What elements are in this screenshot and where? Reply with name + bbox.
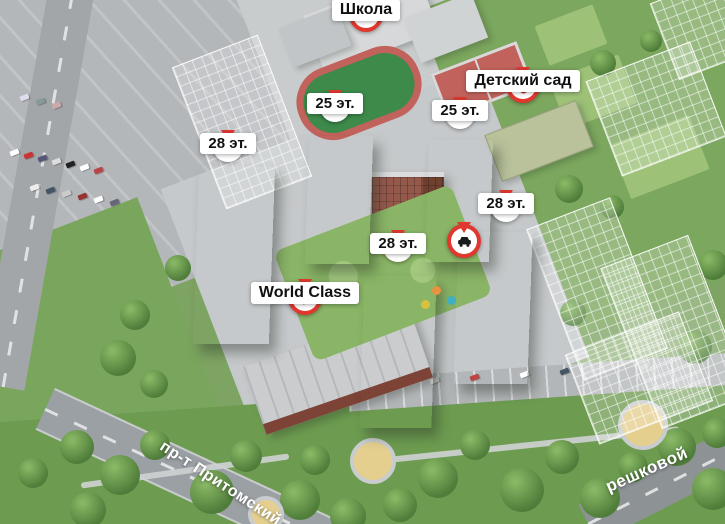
tree	[383, 488, 417, 522]
aerial-masterplan-scene: Школа к 2 25 эт. к 1 25 эт. Детский сад …	[0, 0, 725, 524]
tree	[60, 430, 94, 464]
tower-k5	[193, 166, 275, 344]
tree	[555, 175, 583, 203]
tree	[418, 458, 458, 498]
tree	[70, 492, 106, 524]
floors-label-k1: 25 эт.	[432, 100, 487, 121]
sand-circle-playground	[350, 438, 396, 484]
playground-element	[447, 296, 456, 305]
playground-element	[432, 286, 441, 295]
tower-brick-base	[428, 140, 429, 171]
tree	[702, 418, 725, 448]
tree	[18, 458, 48, 488]
world-class-label: World Class	[251, 282, 359, 304]
tree	[280, 480, 320, 520]
tower-k2	[305, 136, 373, 264]
tree	[100, 340, 136, 376]
floors-label-k5: 28 эт.	[200, 133, 255, 154]
tower-brick-base	[308, 136, 309, 168]
tree	[640, 30, 662, 52]
tower-brick-base	[363, 276, 364, 314]
playground-element	[421, 300, 430, 309]
tree	[230, 440, 262, 472]
floors-label-k4: 28 эт.	[370, 233, 425, 254]
tree	[300, 445, 330, 475]
floors-label-k3: 28 эт.	[478, 193, 533, 214]
tower-k4	[359, 276, 436, 428]
tree	[545, 440, 579, 474]
kindergarten-label: Детский сад	[466, 70, 579, 92]
school-label: Школа	[332, 0, 400, 21]
tree	[500, 468, 544, 512]
tree	[140, 370, 168, 398]
tree	[165, 255, 191, 281]
tree	[460, 430, 490, 460]
floors-label-k2: 25 эт.	[307, 93, 362, 114]
tree	[100, 455, 140, 495]
tree	[120, 300, 150, 330]
pin-tail	[457, 222, 471, 240]
